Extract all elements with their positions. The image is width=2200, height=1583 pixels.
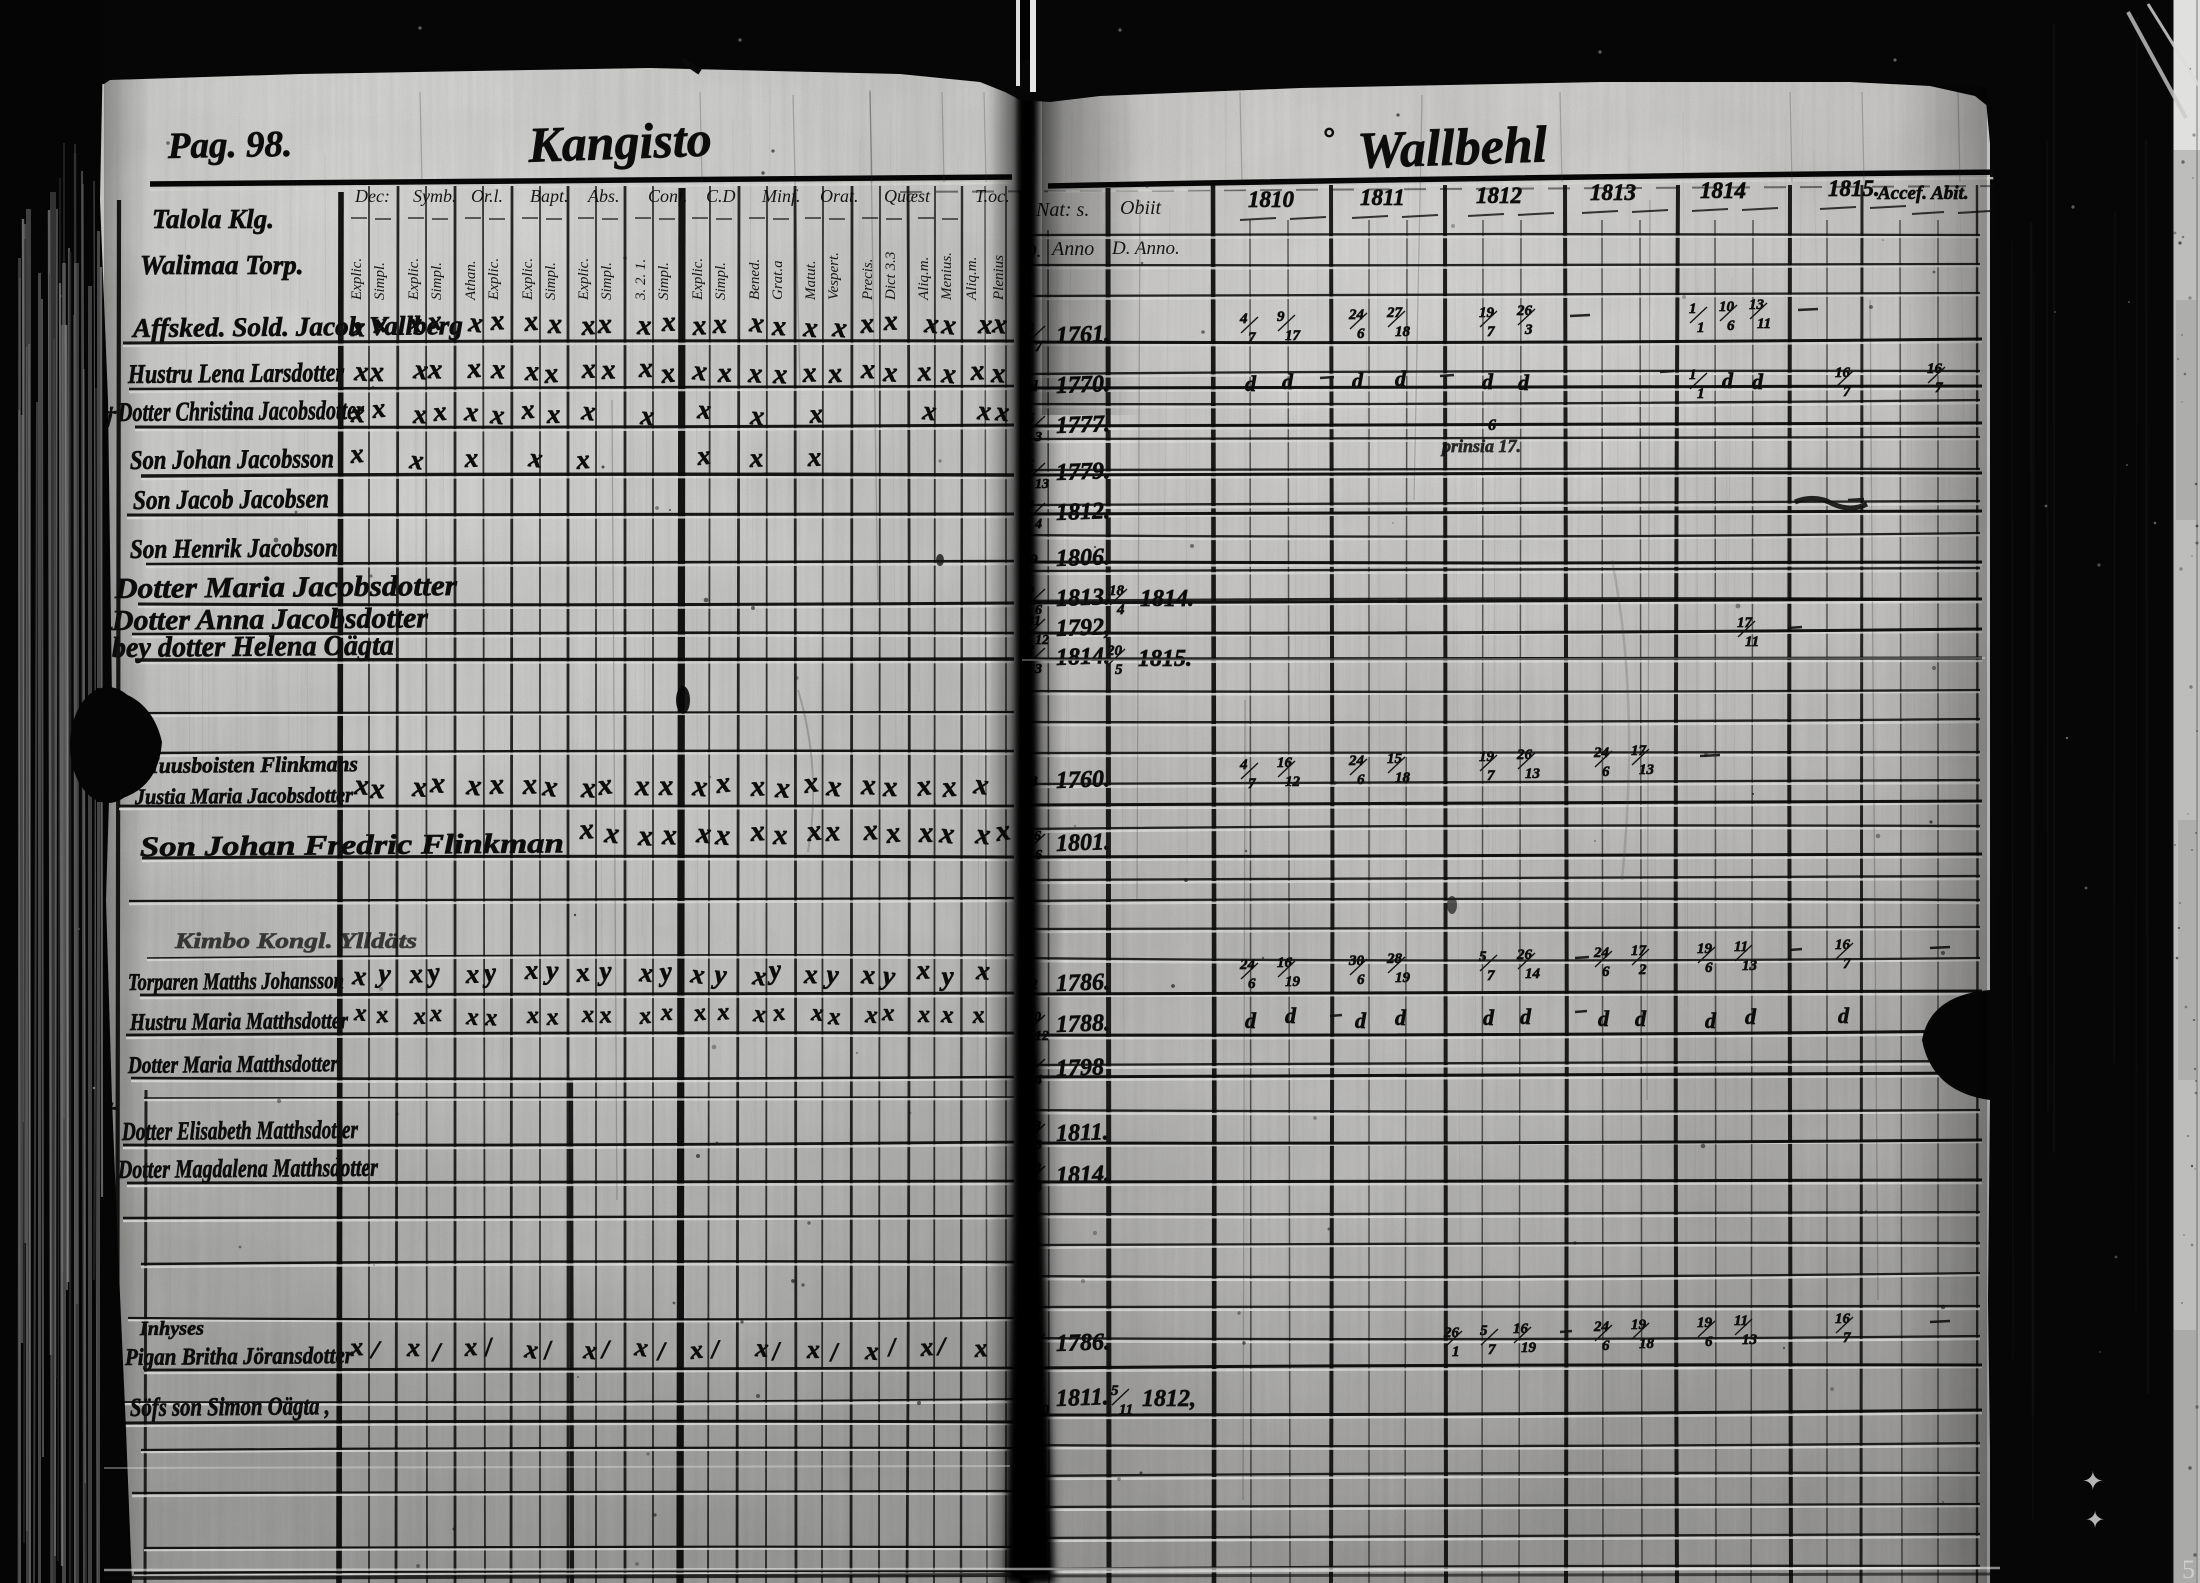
svg-text:5: 5 bbox=[2182, 1555, 2195, 1583]
svg-text:✦: ✦ bbox=[2082, 1467, 2104, 1496]
svg-text:✦: ✦ bbox=[2085, 1508, 2105, 1534]
